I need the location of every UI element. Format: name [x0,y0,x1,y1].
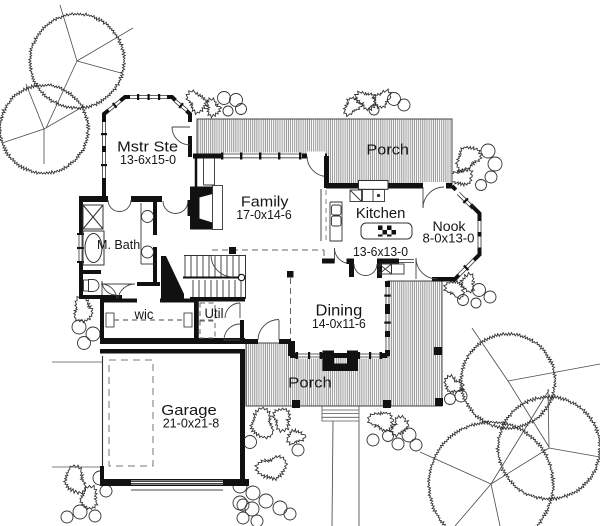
svg-text:wic: wic [134,307,154,322]
svg-text:8-0x13-0: 8-0x13-0 [423,231,475,246]
svg-text:M. Bath: M. Bath [97,238,140,252]
svg-text:Util: Util [205,306,224,321]
svg-text:Kitchen: Kitchen [356,206,406,222]
svg-text:Porch: Porch [366,143,409,159]
svg-text:Porch: Porch [288,376,332,392]
svg-text:13-6x15-0: 13-6x15-0 [120,152,176,167]
svg-text:14-0x11-6: 14-0x11-6 [312,316,366,331]
svg-text:17-0x14-6: 17-0x14-6 [236,207,292,222]
svg-text:13-6x13-0: 13-6x13-0 [353,244,408,259]
svg-text:21-0x21-8: 21-0x21-8 [163,416,220,431]
